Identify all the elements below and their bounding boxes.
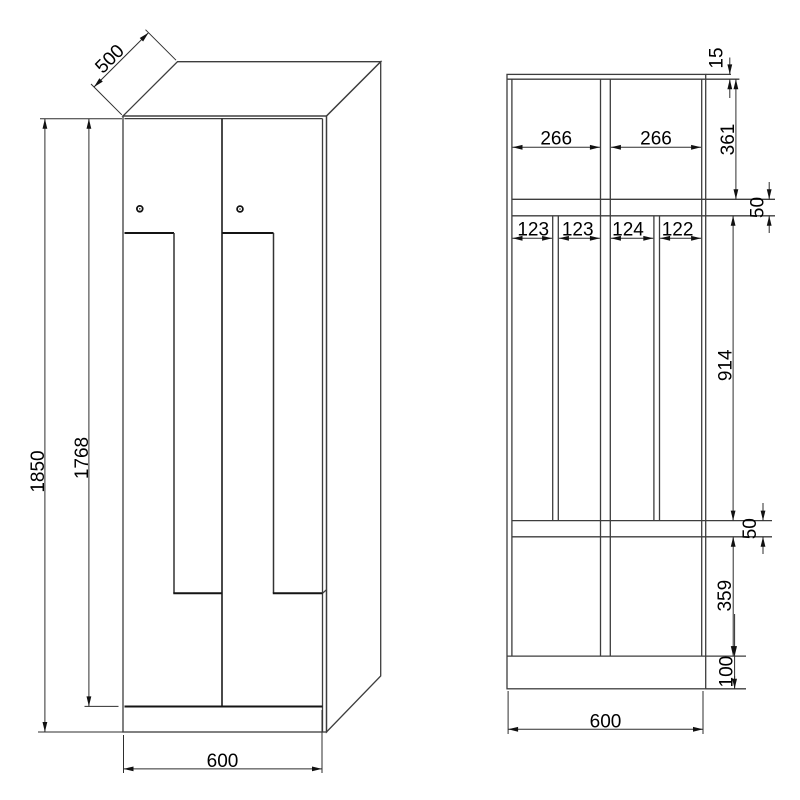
svg-text:124: 124 xyxy=(612,219,644,240)
svg-text:1850: 1850 xyxy=(28,450,49,492)
svg-text:600: 600 xyxy=(590,711,622,732)
svg-text:100: 100 xyxy=(717,656,738,688)
svg-text:1768: 1768 xyxy=(72,437,93,479)
svg-text:123: 123 xyxy=(517,219,549,240)
svg-text:914: 914 xyxy=(716,349,737,381)
svg-text:50: 50 xyxy=(740,518,761,539)
svg-text:500: 500 xyxy=(91,41,128,78)
svg-text:50: 50 xyxy=(748,197,769,218)
svg-text:266: 266 xyxy=(540,129,572,150)
svg-text:15: 15 xyxy=(707,47,728,68)
svg-text:266: 266 xyxy=(640,129,672,150)
svg-text:361: 361 xyxy=(718,124,739,156)
svg-text:600: 600 xyxy=(207,751,239,772)
svg-text:123: 123 xyxy=(562,219,594,240)
svg-text:359: 359 xyxy=(715,580,736,612)
svg-text:122: 122 xyxy=(662,219,694,240)
